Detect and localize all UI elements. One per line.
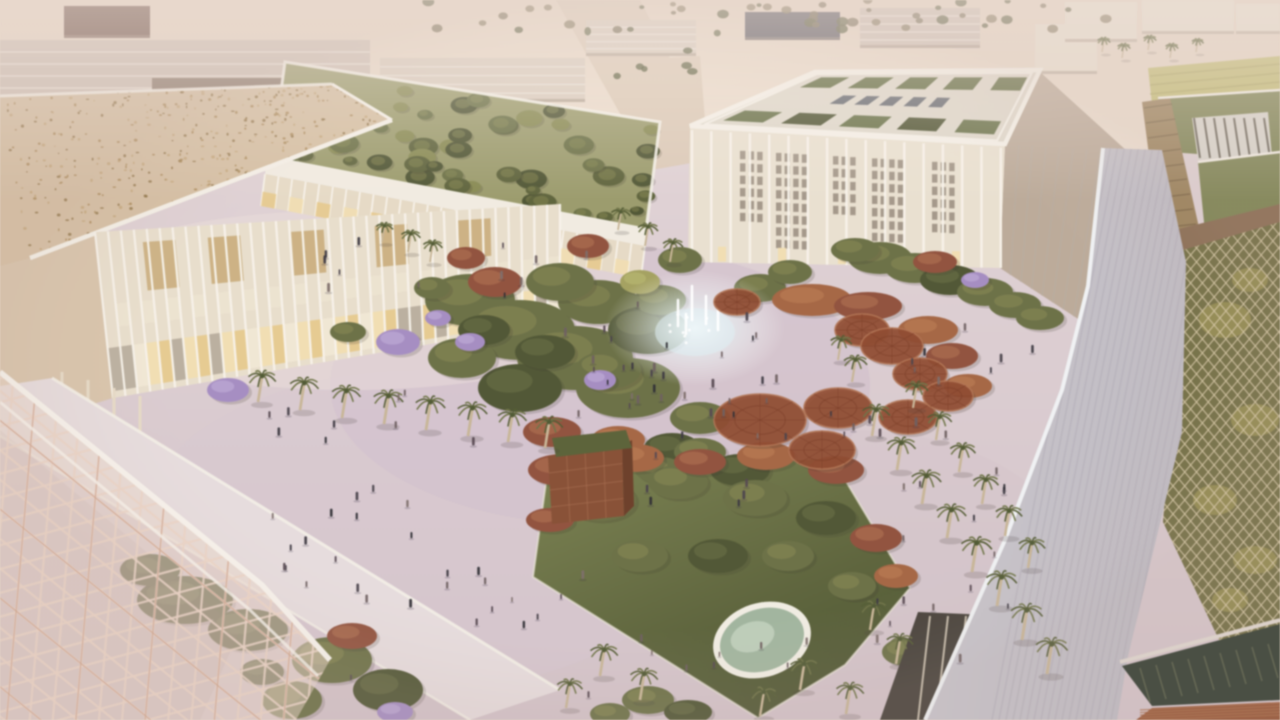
vignette [0,0,1280,720]
aerial-architectural-rendering [0,0,1280,720]
layer-atmosphere [0,0,1280,720]
scene-svg [0,0,1280,720]
